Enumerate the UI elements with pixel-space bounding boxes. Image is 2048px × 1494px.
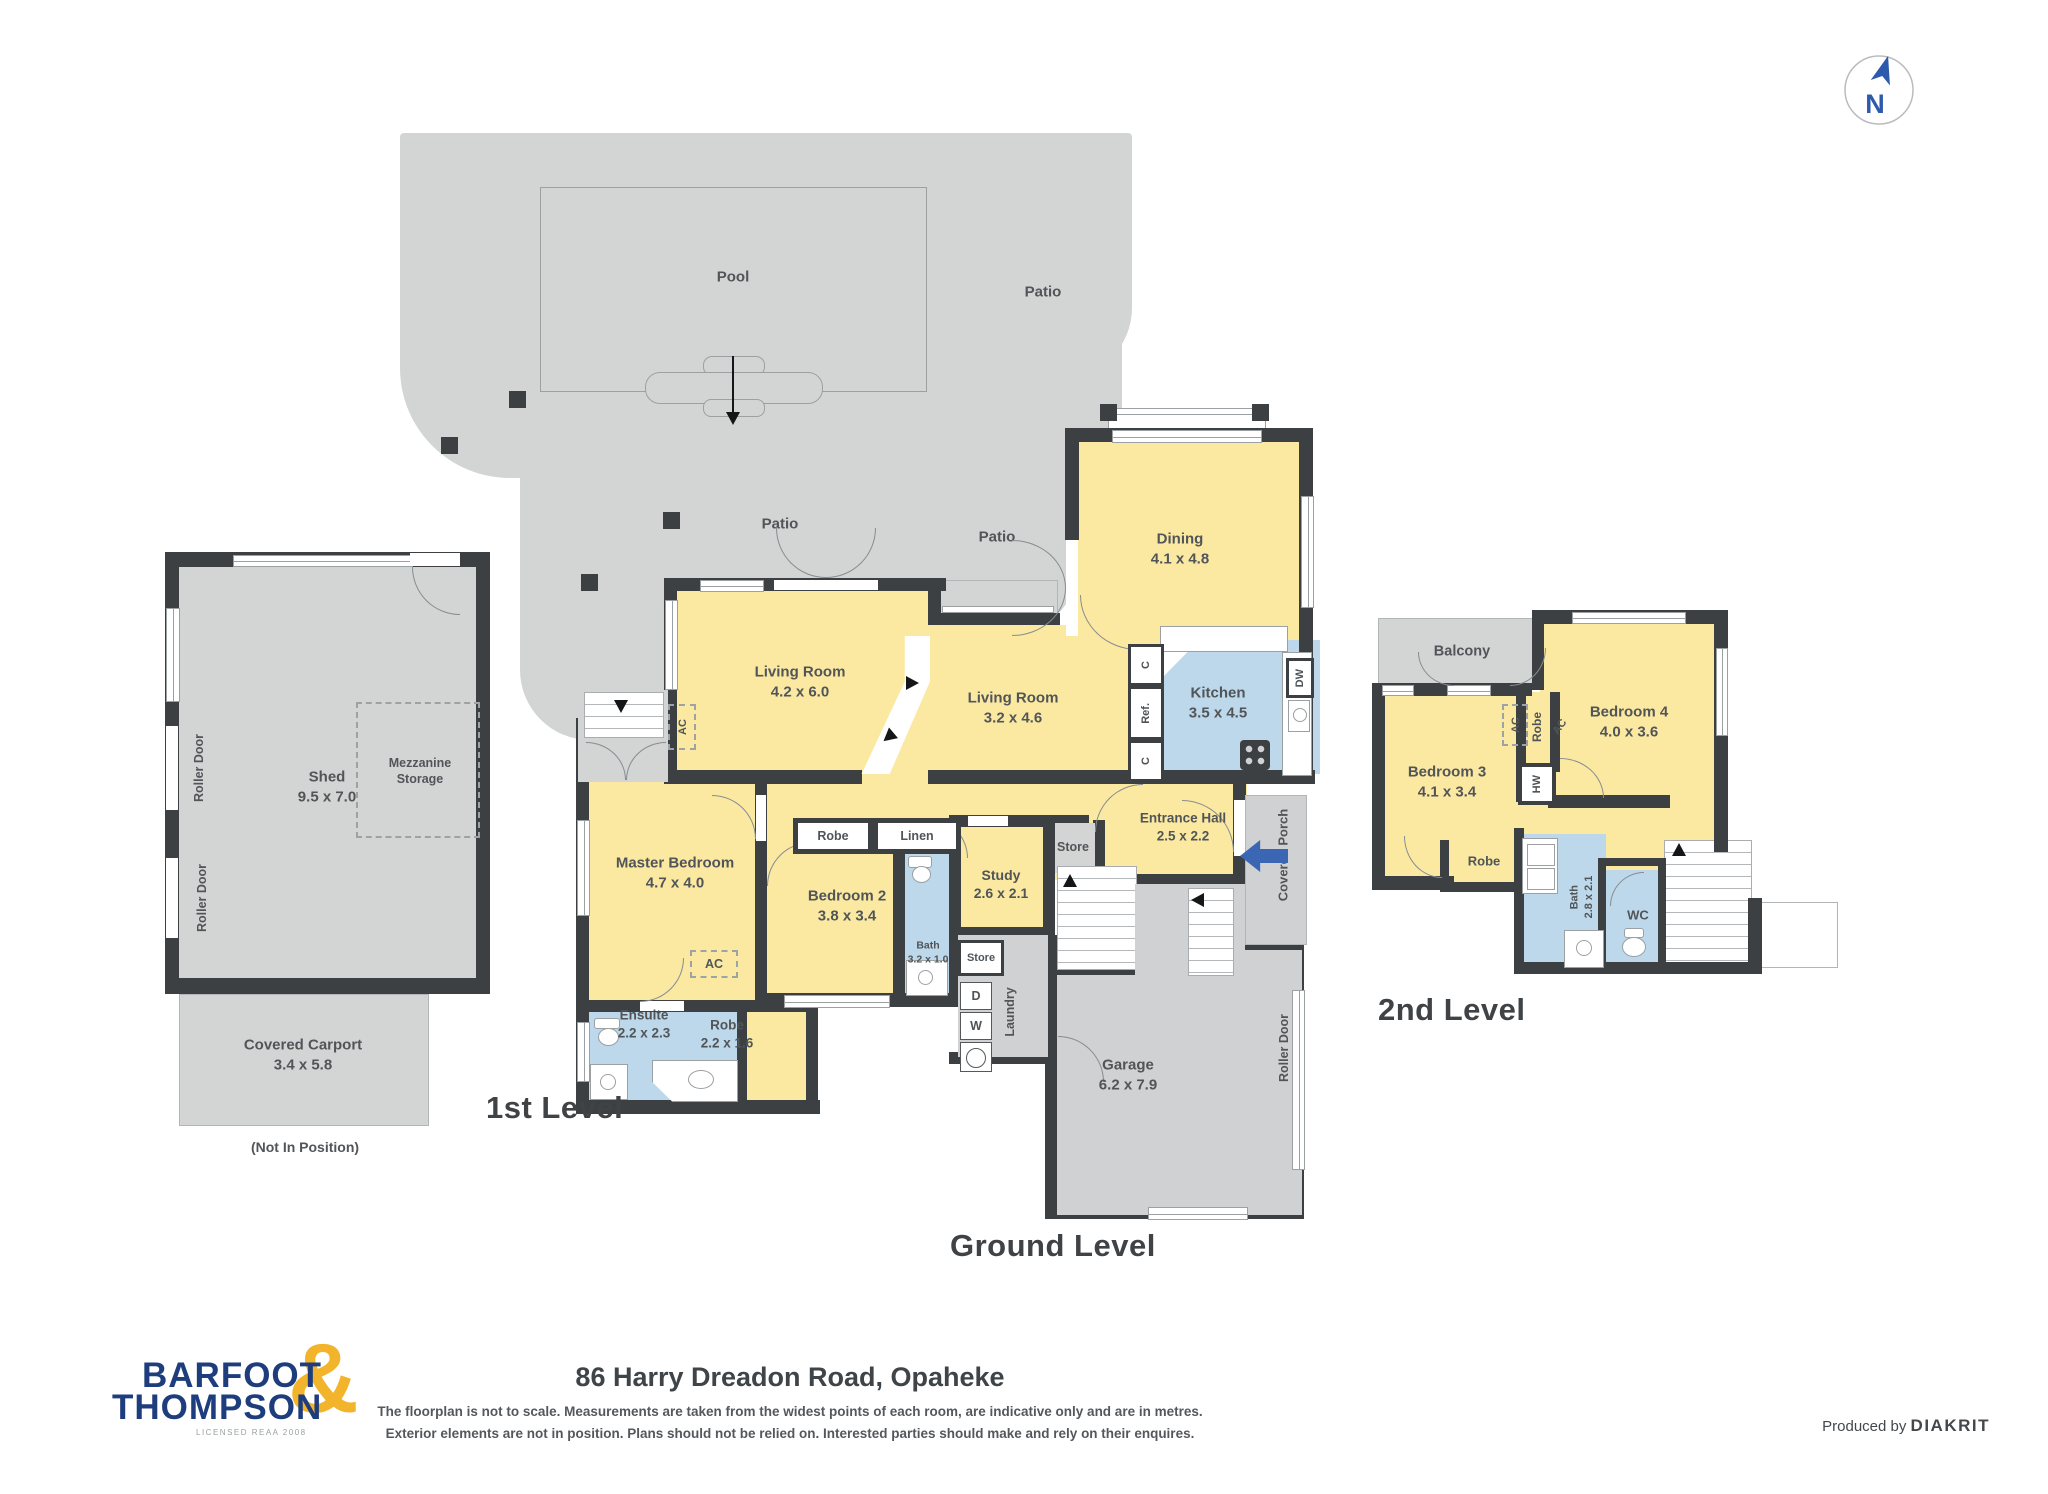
window [1572, 612, 1686, 624]
patio-doors-gap [774, 580, 878, 590]
room-name: Master Bedroom [616, 854, 734, 874]
north-arrow-icon: N [1842, 53, 1916, 127]
svg-text:N: N [1865, 89, 1885, 119]
room-label-entrance: Entrance Hall 2.5 x 2.2 [1140, 809, 1226, 844]
shower-head [600, 1074, 616, 1090]
logo-line2: THOMPSON [112, 1388, 322, 1428]
producer-brand: DIAKRIT [1911, 1416, 1990, 1435]
fridge: Ref. [1128, 686, 1164, 740]
ac-label: AC [676, 719, 690, 735]
garage-floor [1057, 975, 1302, 1215]
window [665, 600, 678, 690]
upper-stairs [1664, 840, 1752, 966]
room-label-bed4: Bedroom 4 4.0 x 3.6 [1590, 703, 1668, 742]
window [1716, 648, 1728, 736]
mezzanine-label: Mezzanine Storage [375, 755, 465, 788]
page-title: 86 Harry Dreadon Road, Opaheke [340, 1362, 1240, 1393]
window [577, 820, 590, 916]
room-dims: 2.8 x 2.1 [1582, 876, 1596, 919]
patio-post [509, 391, 526, 408]
stairs-arrow-icon [1672, 843, 1686, 856]
room-dims: 3.2 x 4.6 [968, 708, 1059, 728]
window [1382, 685, 1414, 696]
hw-label: HW [1531, 775, 1543, 793]
dining-patio-doors [1066, 540, 1078, 636]
cupboard: C [1128, 644, 1164, 686]
wall [1655, 962, 1762, 974]
store-label: Store [1057, 839, 1089, 855]
room-dims: 2.2 x 2.3 [618, 1024, 671, 1042]
room-label-bed2: Bedroom 2 3.8 x 3.4 [808, 887, 886, 926]
bay-post [1100, 404, 1117, 421]
produced-by: Produced by DIAKRIT [1700, 1416, 1990, 1436]
wc-label: WC [1627, 908, 1649, 925]
patio-post [441, 437, 458, 454]
room-label-living2: Living Room 3.2 x 4.6 [968, 689, 1059, 728]
compass: N [1842, 53, 1916, 127]
robe-label: Robe [817, 829, 848, 843]
room-dims: 3.4 x 5.8 [244, 1055, 362, 1075]
room-dims: 2.2 x 1.6 [701, 1034, 754, 1052]
wall [1372, 683, 1385, 890]
room-name: Robe [701, 1016, 754, 1034]
stove [1240, 740, 1270, 770]
room-dims: 2.6 x 2.1 [974, 884, 1029, 902]
roller-door-label: Roller Door [1276, 1014, 1292, 1082]
study-door-gap [968, 816, 1008, 826]
shed-door-gap [410, 553, 460, 566]
disclaimer-line2: Exterior elements are not in position. P… [340, 1426, 1240, 1441]
cupboard: C [1128, 740, 1164, 782]
washer-label: W [970, 1019, 982, 1033]
shower-head [918, 970, 933, 985]
window [1112, 430, 1262, 443]
room-name: Ensuite [618, 1006, 671, 1024]
produced-by-label: Produced by [1822, 1418, 1906, 1435]
dryer: D [960, 982, 992, 1010]
room-name: Entrance Hall [1140, 809, 1226, 827]
ac-label: AC [705, 956, 723, 972]
room-name: Covered Carport [244, 1036, 362, 1056]
window [1148, 1207, 1248, 1220]
second-level-title: 2nd Level [1378, 992, 1526, 1028]
dining-bay-line [1112, 414, 1260, 415]
wall [806, 1008, 818, 1112]
roller-door-gap [166, 858, 178, 938]
window [1447, 685, 1491, 696]
garage-upper-floor [1245, 950, 1302, 990]
room-label-robe-master: Robe 2.2 x 1.6 [701, 1016, 754, 1051]
washer: W [960, 1012, 992, 1040]
cupboard-label: C [1140, 661, 1152, 669]
wall [893, 848, 905, 996]
room-dims: 3.8 x 3.4 [808, 906, 886, 926]
stairs-arrow-icon [1191, 893, 1204, 907]
room-dims: 3.5 x 4.5 [1189, 703, 1247, 723]
robe-label: Robe [1530, 712, 1546, 742]
room-name: Bath [1568, 876, 1582, 919]
master-door-gap [756, 795, 766, 841]
store-closet: Store [958, 940, 1004, 976]
roller-door-gap [166, 726, 178, 810]
patio-label: Patio [1025, 282, 1062, 302]
room-dims: 9.5 x 7.0 [298, 787, 356, 807]
cupboard-label: C [1140, 757, 1152, 765]
store-label: Store [967, 952, 995, 964]
wall [1714, 800, 1728, 852]
hot-water-unit: HW [1518, 763, 1556, 805]
linen-label: Linen [900, 829, 933, 843]
wall [1043, 823, 1055, 935]
toilet-bowl [598, 1028, 619, 1046]
window [700, 580, 764, 592]
first-level-title: 1st Level [486, 1090, 623, 1126]
room-label-bath1: Bath 3.2 x 1.0 [908, 939, 949, 966]
room-dims: 4.1 x 4.8 [1151, 549, 1209, 569]
shower-head [1576, 940, 1592, 956]
dishwasher-label: DW [1294, 669, 1306, 687]
kitchen-counter [1160, 626, 1288, 652]
window [166, 608, 180, 702]
window [577, 1022, 590, 1082]
room-dims: 4.1 x 3.4 [1408, 782, 1486, 802]
roller-door-label: Roller Door [191, 734, 207, 802]
dryer-label: D [971, 989, 980, 1003]
room-label-dining: Dining 4.1 x 4.8 [1151, 530, 1209, 569]
room-name: Garage [1099, 1056, 1157, 1076]
room-name: Kitchen [1189, 684, 1247, 704]
room-dims: 6.2 x 7.9 [1099, 1075, 1157, 1095]
toilet-bowl [912, 866, 931, 883]
floorplan-canvas: Pool Patio Patio Patio Roller Door Rolle… [0, 0, 2048, 1494]
stairs-arrow-icon [1063, 874, 1077, 887]
wall [1065, 428, 1079, 540]
patio-post [663, 512, 680, 529]
roller-door-label: Roller Door [194, 864, 210, 932]
ground-level-title: Ground Level [950, 1228, 1156, 1264]
linen-closet: Linen [873, 818, 961, 854]
robe-closet: Robe [793, 818, 873, 854]
steps-arrow-icon [614, 700, 628, 713]
room-label-bath2: Bath 2.8 x 2.1 [1568, 876, 1597, 919]
pool-steps-arrow-icon [726, 412, 740, 425]
brand-logo: & BARFOOT THOMPSON LICENSED REAA 2008 [108, 1344, 378, 1444]
room-name: Shed [298, 768, 356, 788]
vanity-sink [1527, 844, 1555, 866]
fridge-label: Ref. [1140, 703, 1152, 724]
toilet-bowl [1622, 937, 1646, 957]
room-dims: 3.2 x 1.0 [908, 953, 949, 967]
room-name: Bath [908, 939, 949, 953]
room-dims: 2.5 x 2.2 [1140, 827, 1226, 845]
room-name: Living Room [755, 663, 846, 683]
room-label-kitchen: Kitchen 3.5 x 4.5 [1189, 684, 1247, 723]
wall [1658, 864, 1666, 972]
room-label-study: Study 2.6 x 2.1 [974, 866, 1029, 902]
laundry-label: Laundry [1002, 987, 1018, 1036]
dishwasher: DW [1286, 658, 1314, 698]
pool-label: Pool [717, 267, 750, 287]
room-name: Dining [1151, 530, 1209, 550]
logo-tagline: LICENSED REAA 2008 [196, 1428, 307, 1437]
disclaimer-line1: The floorplan is not to scale. Measureme… [340, 1404, 1240, 1419]
stair-void [1760, 902, 1838, 968]
not-in-position-label: (Not In Position) [251, 1138, 359, 1156]
window [233, 555, 413, 567]
room-name: Bedroom 4 [1590, 703, 1668, 723]
shed-label: Shed 9.5 x 7.0 [298, 768, 356, 807]
patio-post [581, 574, 598, 591]
window [784, 995, 890, 1008]
patio-label: Patio [979, 527, 1016, 547]
vanity-sink [688, 1070, 714, 1089]
room-dims: 4.7 x 4.0 [616, 873, 734, 893]
room-dims: 4.0 x 3.6 [1590, 722, 1668, 742]
vanity-sink [1527, 868, 1555, 890]
room-label-bed3: Bedroom 3 4.1 x 3.4 [1408, 763, 1486, 802]
room-name: Bedroom 3 [1408, 763, 1486, 783]
kitchen-sink-bowl [1293, 708, 1307, 722]
wall [1598, 858, 1666, 866]
laundry-tub-bowl [966, 1048, 986, 1068]
room-name: Study [974, 866, 1029, 884]
stairs-arrow-icon [906, 676, 919, 690]
window [1301, 496, 1314, 608]
room-label-living1: Living Room 4.2 x 6.0 [755, 663, 846, 702]
garage-roller-door [1292, 990, 1305, 1170]
front-door-gap [1234, 800, 1245, 856]
robe-label: Robe [1468, 854, 1501, 871]
wall [928, 770, 1140, 784]
entry-steps [584, 692, 664, 738]
room-name: Bedroom 2 [808, 887, 886, 907]
room-label-master: Master Bedroom 4.7 x 4.0 [616, 854, 734, 893]
pool-steps-line [732, 356, 734, 414]
bay-post [1252, 404, 1269, 421]
room-label-garage: Garage 6.2 x 7.9 [1099, 1056, 1157, 1095]
ac-label: AC [1509, 717, 1523, 733]
room-label-ensuite: Ensuite 2.2 x 2.3 [618, 1006, 671, 1041]
room-dims: 4.2 x 6.0 [755, 682, 846, 702]
carport-label: Covered Carport 3.4 x 5.8 [244, 1036, 362, 1075]
wall [165, 978, 487, 994]
room-name: Living Room [968, 689, 1059, 709]
